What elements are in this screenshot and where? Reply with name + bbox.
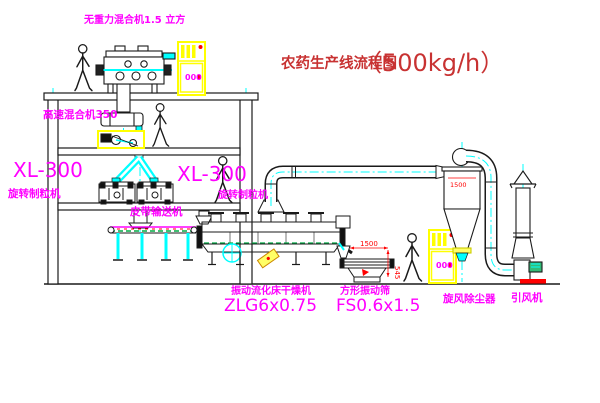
label-dryer-model: ZLG6x0.75 [224,296,317,316]
dryer-exhaust-duct [258,166,452,213]
label-granulator-mid-name: 旋转制粒机 [217,188,268,201]
cabinet-lower-display: 000 [436,261,453,270]
granulator-left [99,178,135,204]
flow-diagram-canvas: 000 000 [0,0,600,403]
label-granulator-left-model: XL-300 [13,158,83,182]
label-granulator-left-name: 旋转制粒机 [7,187,61,200]
induced-draft-fan [514,260,546,284]
granulator-right [137,178,173,204]
control-cabinet-upper [178,42,205,95]
label-cyclone: 旋风除尘器 [442,292,496,305]
dim-sieve-length: 1500 [360,240,378,248]
person-second-floor [153,104,169,147]
label-high-speed-mixer: 高速混合机350 [43,108,117,121]
person-roof [75,45,92,91]
pesticide-line-drawing: 000 000 [0,0,600,403]
belt-conveyor [108,227,197,260]
label-sieve-model: FS0.6x1.5 [336,296,420,316]
label-belt-conveyor: 皮带输送机 [129,205,183,218]
dim-sieve-height: 545 [393,266,401,279]
control-cabinet-lower [429,230,456,283]
label-granulator-mid-model: XL-300 [177,162,247,186]
page-title-capacity: （500kg/h） [358,49,504,77]
dim-cyclone-height: 1500 [450,181,467,189]
person-ground [404,234,422,281]
fluid-bed-dryer [196,211,352,268]
label-gravity-free-mixer: 无重力混合机1.5 立方 [83,13,185,26]
cabinet-upper-display: 000 [185,73,202,82]
label-fan: 引风机 [511,291,543,304]
exhaust-stack [510,171,536,258]
gravity-free-mixer [96,46,175,112]
